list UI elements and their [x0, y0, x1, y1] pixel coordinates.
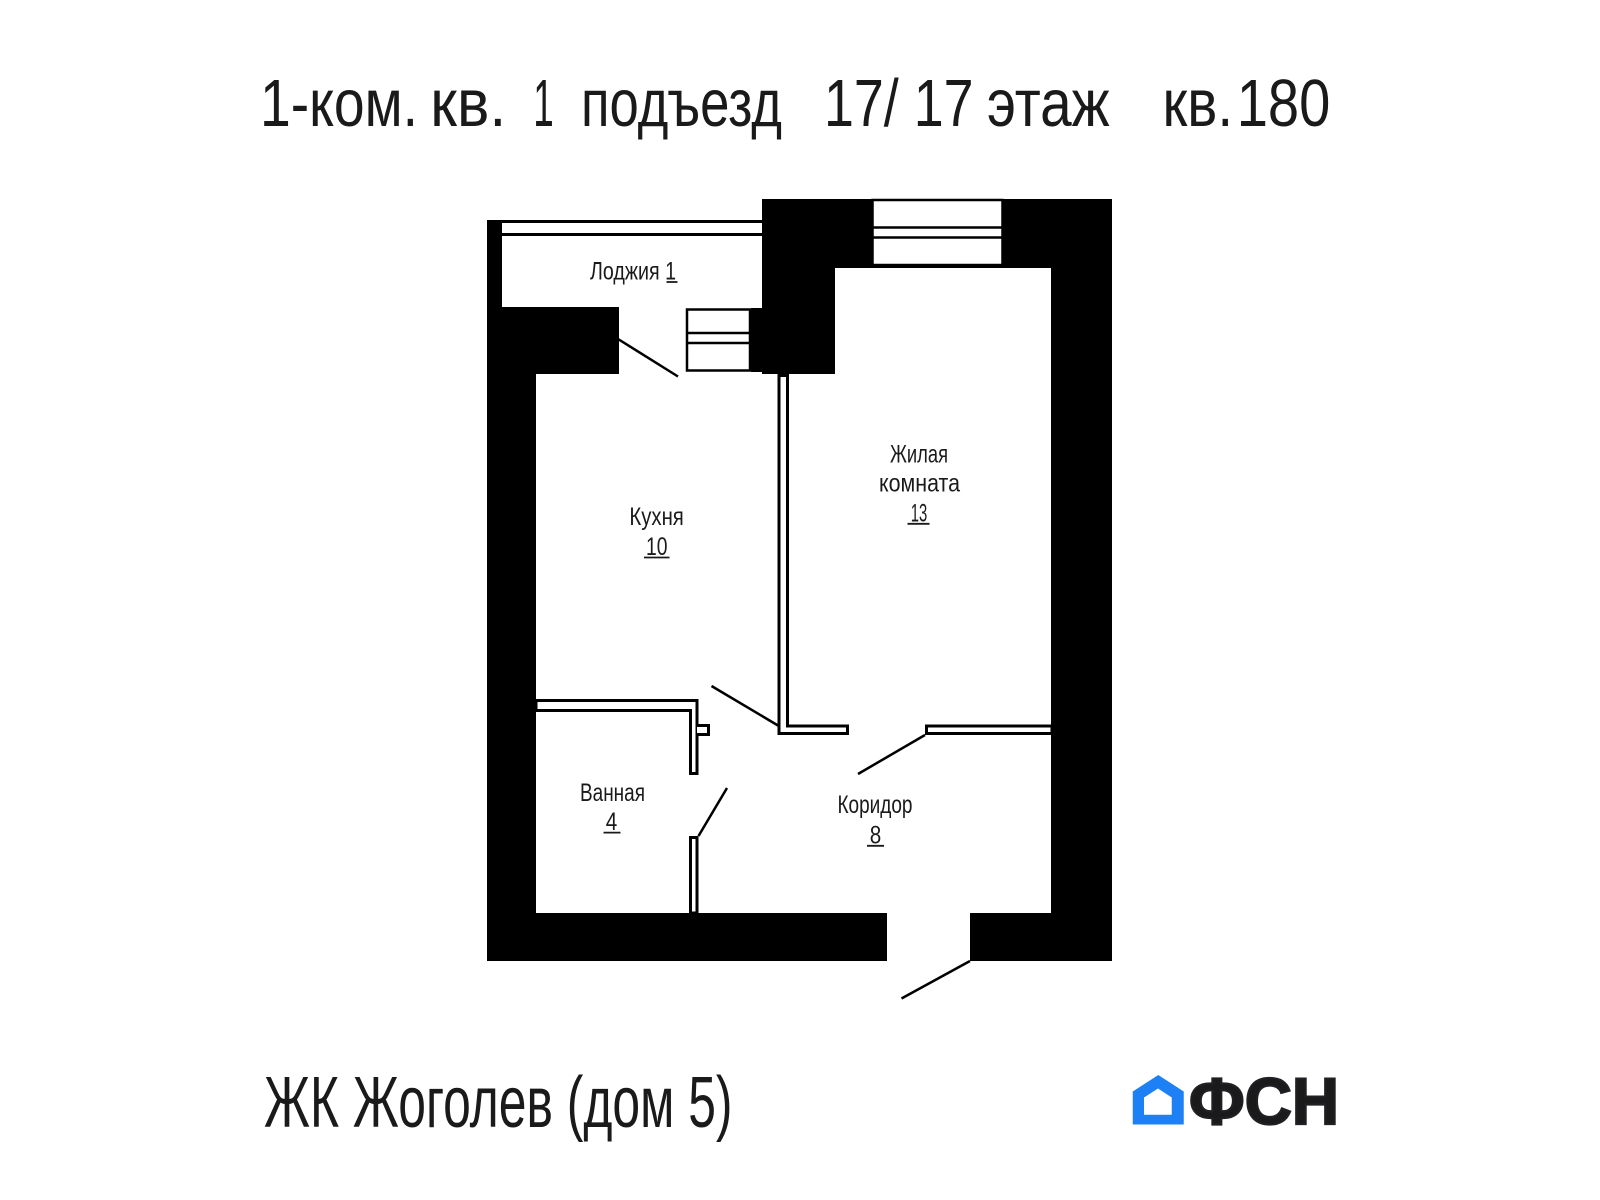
- svg-text:этаж: этаж: [987, 66, 1110, 141]
- svg-text:кв.: кв.: [1163, 66, 1234, 141]
- svg-text:кв.: кв.: [430, 66, 506, 141]
- svg-text:Кухня: Кухня: [629, 503, 684, 531]
- svg-text:Ванная: Ванная: [580, 779, 645, 807]
- svg-text:комната: комната: [879, 470, 960, 498]
- svg-text:Лоджия 1: Лоджия 1: [590, 258, 676, 286]
- svg-text:подъезд: подъезд: [581, 66, 782, 141]
- svg-text:ЖК Жоголев (дом 5): ЖК Жоголев (дом 5): [264, 1063, 733, 1143]
- svg-text:ФСН: ФСН: [1189, 1064, 1339, 1138]
- svg-text:17/ 17: 17/ 17: [824, 66, 974, 141]
- svg-text:Коридор: Коридор: [838, 791, 913, 819]
- svg-text:180: 180: [1237, 66, 1331, 141]
- svg-text:1-ком.: 1-ком.: [260, 66, 418, 141]
- svg-text:Жилая: Жилая: [890, 441, 948, 469]
- svg-text:1: 1: [533, 66, 554, 141]
